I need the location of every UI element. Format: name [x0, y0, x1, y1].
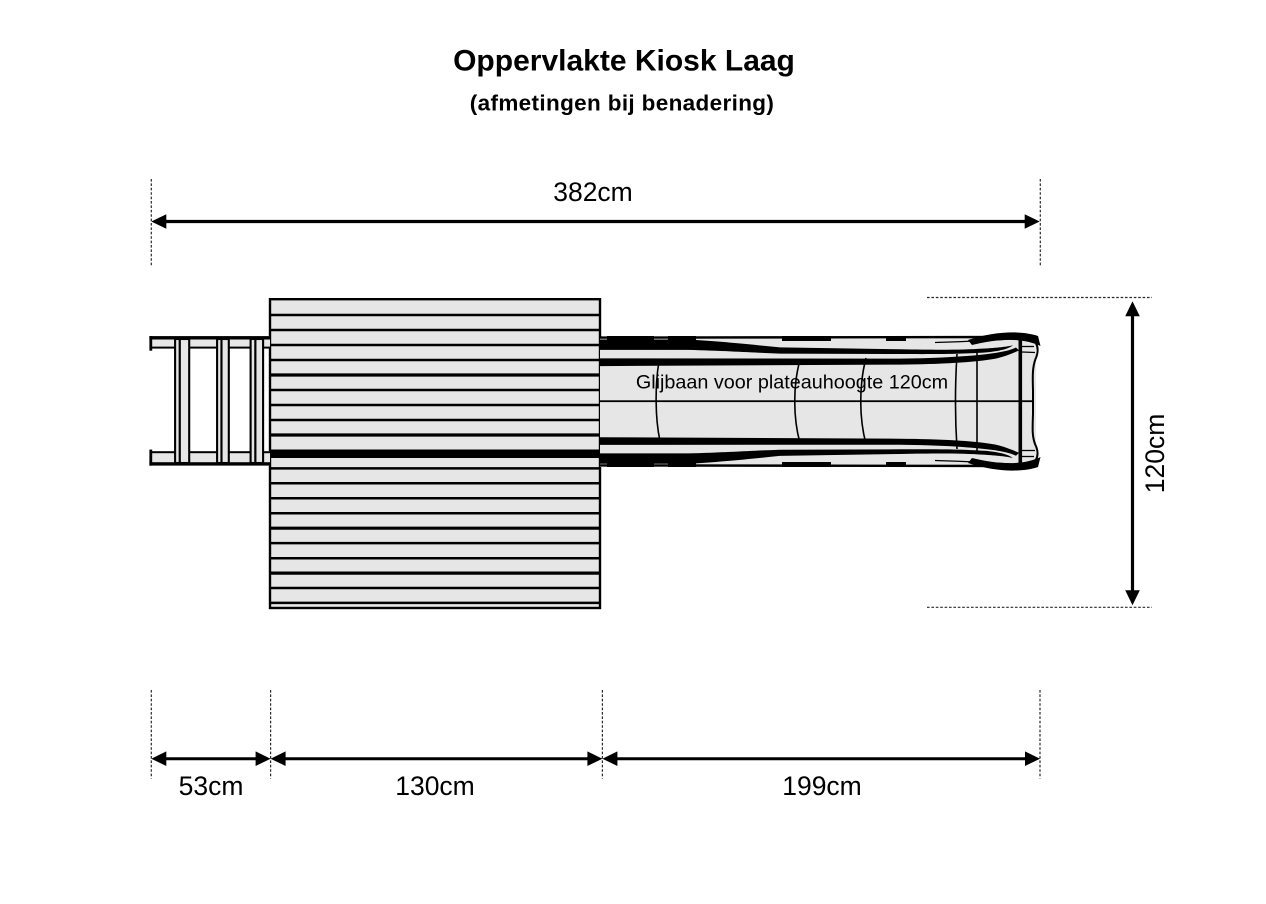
svg-text:Glijbaan voor plateauhoogte 12: Glijbaan voor plateauhoogte 120cm	[636, 372, 948, 394]
svg-text:199cm: 199cm	[782, 771, 862, 801]
svg-text:130cm: 130cm	[395, 771, 475, 801]
svg-text:120cm: 120cm	[1140, 414, 1170, 494]
svg-text:(afmetingen bij benadering): (afmetingen bij benadering)	[470, 91, 774, 116]
svg-text:53cm: 53cm	[179, 771, 244, 801]
svg-text:382cm: 382cm	[553, 177, 633, 207]
svg-text:Oppervlakte Kiosk Laag: Oppervlakte Kiosk Laag	[453, 45, 795, 78]
